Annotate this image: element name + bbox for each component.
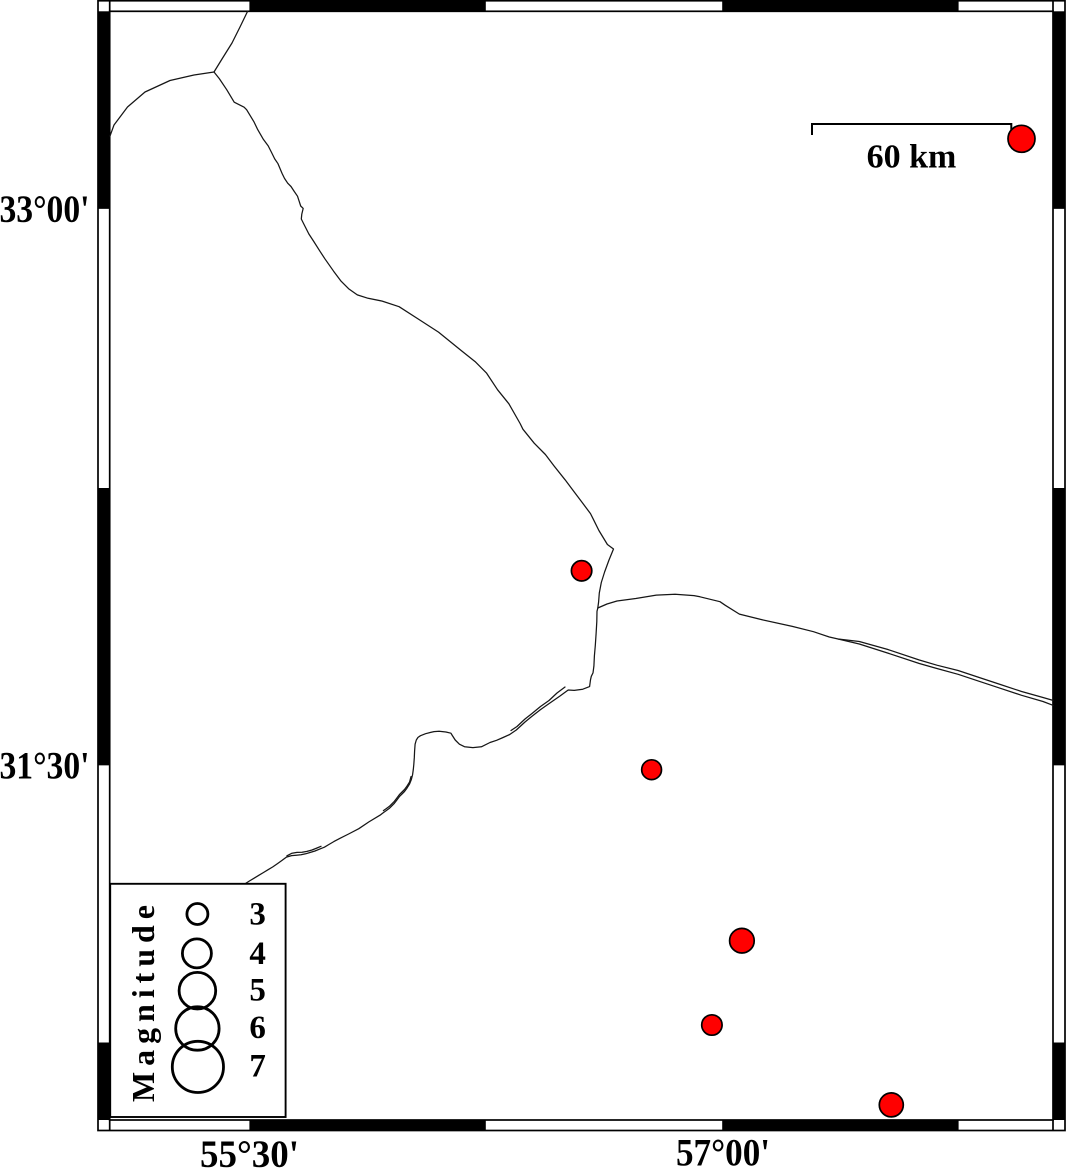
svg-text:55°30': 55°30' xyxy=(200,1133,299,1169)
svg-text:5: 5 xyxy=(249,972,266,1008)
svg-text:7: 7 xyxy=(249,1048,266,1084)
svg-text:6: 6 xyxy=(249,1010,266,1046)
svg-text:4: 4 xyxy=(249,936,266,972)
svg-text:60 km: 60 km xyxy=(867,139,957,176)
svg-text:31°30': 31°30' xyxy=(0,745,90,788)
svg-text:33°00': 33°00' xyxy=(0,188,90,231)
svg-text:57°00': 57°00' xyxy=(676,1132,770,1169)
svg-text:3: 3 xyxy=(249,897,266,933)
